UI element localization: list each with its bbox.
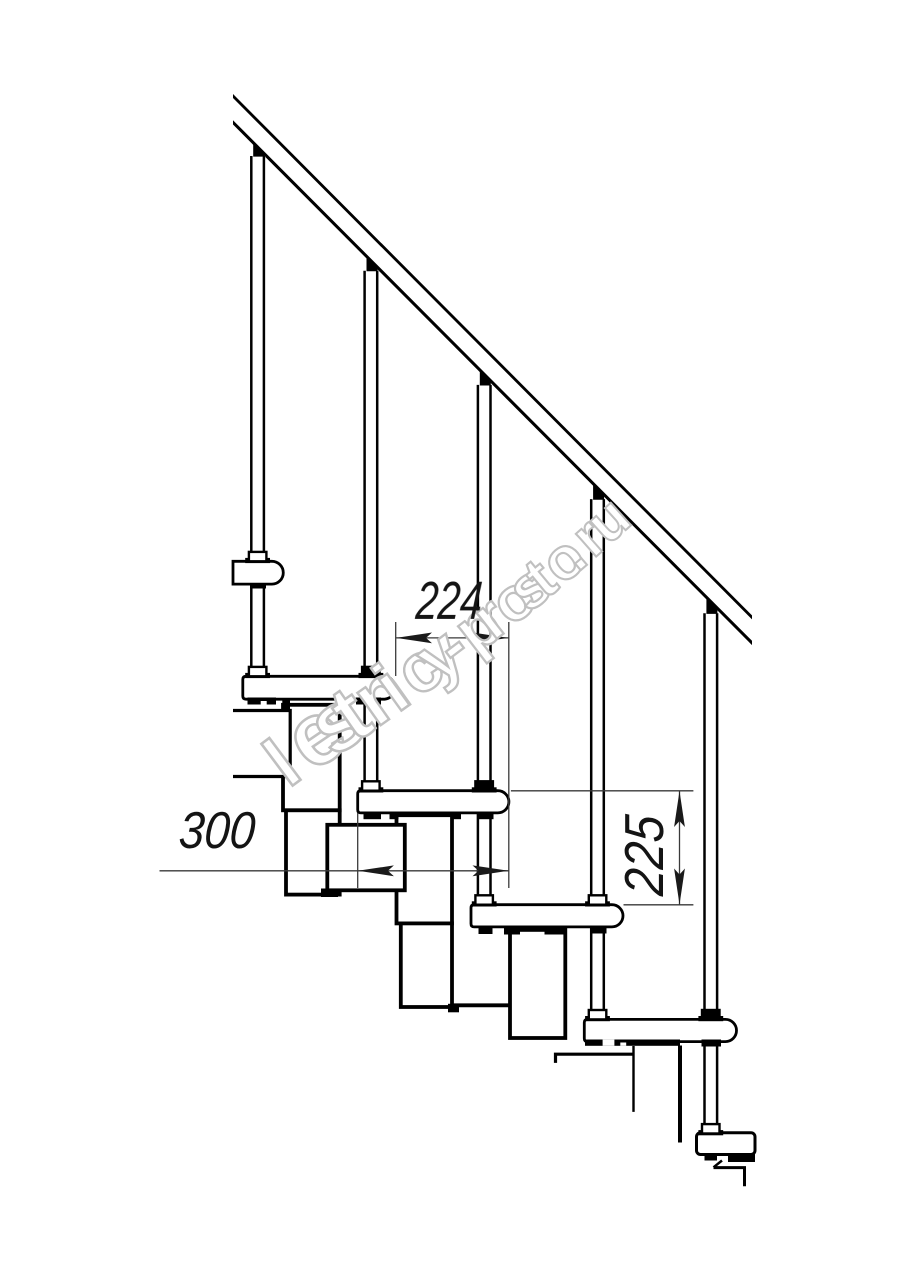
svg-text:300: 300 [177,802,257,860]
svg-text:225: 225 [613,813,675,899]
svg-text:224: 224 [413,572,484,631]
